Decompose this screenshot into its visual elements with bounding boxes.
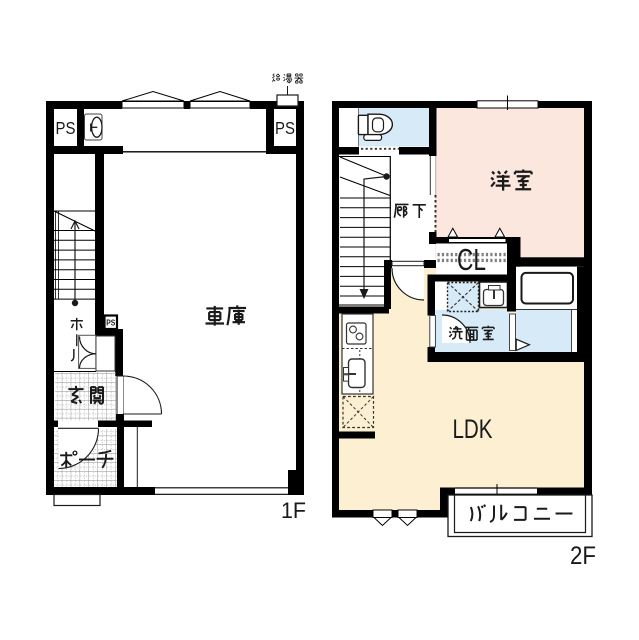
svg-text:1F: 1F — [281, 498, 306, 523]
svg-text:LDK: LDK — [453, 414, 493, 444]
svg-text:PS: PS — [106, 319, 116, 328]
svg-text:PS: PS — [275, 118, 295, 138]
svg-text:2F: 2F — [570, 542, 596, 570]
svg-text:CL: CL — [457, 242, 486, 277]
svg-text:PS: PS — [56, 118, 76, 138]
